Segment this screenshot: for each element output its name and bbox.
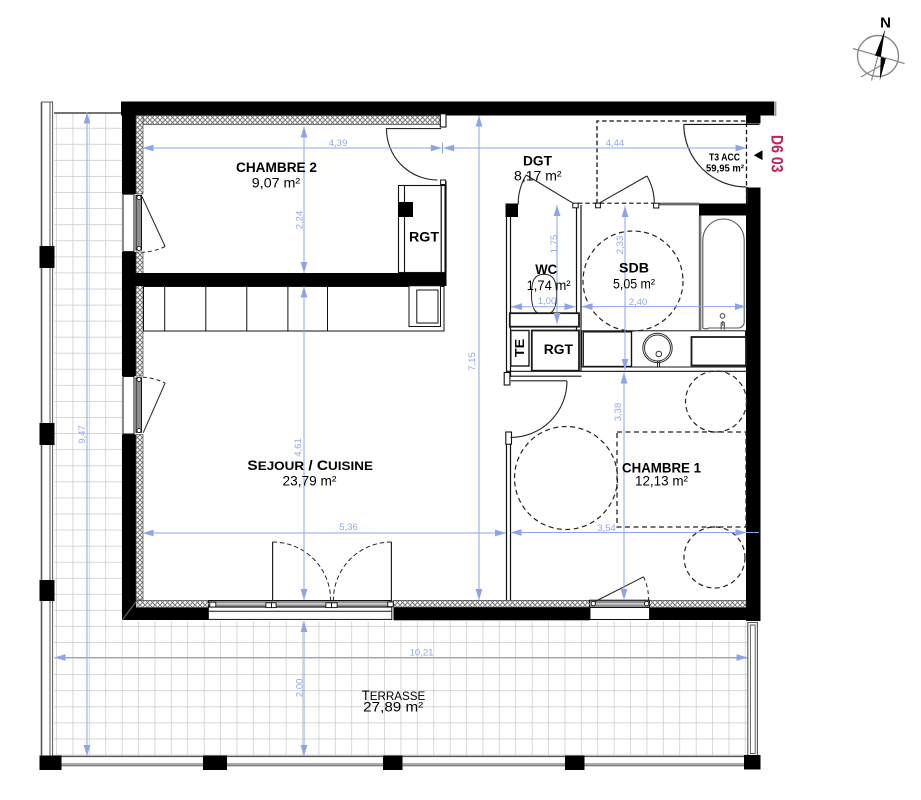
svg-text:3,38: 3,38: [613, 403, 624, 422]
svg-text:9,47: 9,47: [77, 425, 88, 444]
svg-text:RGT: RGT: [409, 230, 440, 245]
svg-text:RGT: RGT: [544, 342, 574, 357]
svg-text:WC: WC: [535, 262, 557, 277]
svg-text:SDB: SDB: [619, 261, 649, 276]
svg-text:4,61: 4,61: [293, 438, 304, 457]
svg-text:9,07 m²: 9,07 m²: [252, 176, 301, 191]
svg-text:4,44: 4,44: [606, 138, 625, 149]
svg-text:1,74 m²: 1,74 m²: [527, 278, 571, 293]
svg-text:5,36: 5,36: [339, 522, 358, 533]
svg-text:23,79 m²: 23,79 m²: [283, 474, 338, 489]
svg-text:1,75: 1,75: [549, 235, 560, 254]
svg-text:2,00: 2,00: [295, 679, 306, 698]
svg-text:12,13 m²: 12,13 m²: [635, 474, 688, 489]
svg-text:T3 ACC: T3 ACC: [709, 153, 740, 164]
svg-text:TE: TE: [513, 339, 527, 357]
svg-text:N: N: [880, 15, 891, 32]
svg-text:7,15: 7,15: [467, 352, 478, 371]
svg-text:2,40: 2,40: [629, 297, 648, 308]
svg-text:DGT: DGT: [523, 154, 553, 169]
svg-text:SEJOUR / CUISINE: SEJOUR / CUISINE: [247, 458, 373, 473]
svg-text:D6 03: D6 03: [767, 135, 785, 173]
svg-text:3,54: 3,54: [597, 523, 616, 534]
svg-text:5,05 m²: 5,05 m²: [613, 277, 655, 292]
svg-text:27,89 m²: 27,89 m²: [363, 700, 424, 715]
svg-text:1,00: 1,00: [538, 296, 557, 307]
svg-text:4,39: 4,39: [329, 138, 348, 149]
svg-text:2,24: 2,24: [294, 211, 305, 230]
svg-text:10,21: 10,21: [410, 648, 434, 659]
svg-text:59,95 m²: 59,95 m²: [706, 164, 745, 175]
svg-text:8,17 m²: 8,17 m²: [514, 169, 562, 184]
svg-text:CHAMBRE 2: CHAMBRE 2: [236, 160, 317, 175]
svg-text:2,33: 2,33: [615, 236, 626, 255]
